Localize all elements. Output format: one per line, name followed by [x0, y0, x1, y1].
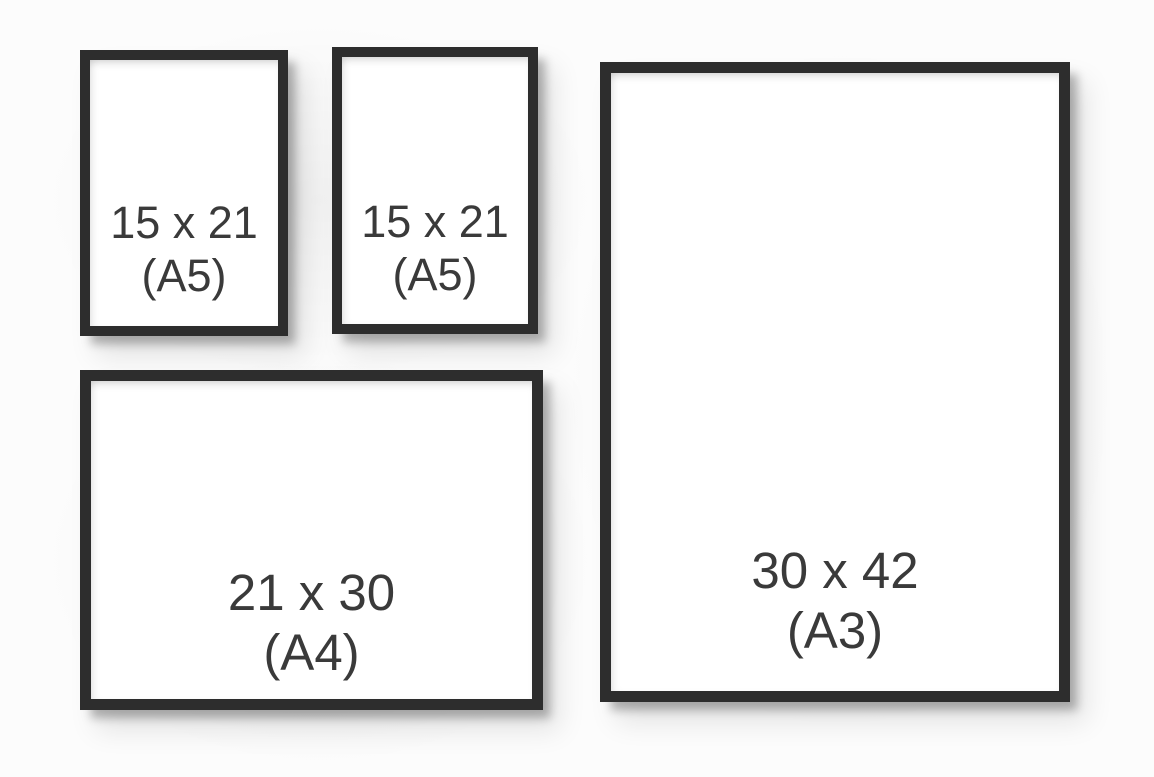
frame-a4: 21 x 30 (A4)	[80, 370, 543, 710]
frame-a5-right-format-text: (A5)	[342, 248, 528, 301]
frame-a3-size-text: 30 x 42	[611, 541, 1059, 601]
frame-a5-right-size-text: 15 x 21	[342, 195, 528, 248]
frame-a4-format-text: (A4)	[91, 623, 532, 683]
frame-a5-right-label: 15 x 21 (A5)	[342, 195, 528, 301]
frame-a5-right: 15 x 21 (A5)	[332, 47, 538, 334]
frame-a3: 30 x 42 (A3)	[600, 62, 1070, 702]
frame-size-diagram: 15 x 21 (A5) 15 x 21 (A5) 21 x 30 (A4) 3…	[0, 0, 1154, 777]
frame-a4-label: 21 x 30 (A4)	[91, 563, 532, 683]
frame-a5-left-size-text: 15 x 21	[90, 196, 278, 249]
frame-a3-format-text: (A3)	[611, 601, 1059, 661]
frame-a5-left-format-text: (A5)	[90, 249, 278, 302]
frame-a5-left: 15 x 21 (A5)	[80, 50, 288, 336]
frame-a3-label: 30 x 42 (A3)	[611, 541, 1059, 661]
frame-a5-left-label: 15 x 21 (A5)	[90, 196, 278, 302]
frame-a4-size-text: 21 x 30	[91, 563, 532, 623]
